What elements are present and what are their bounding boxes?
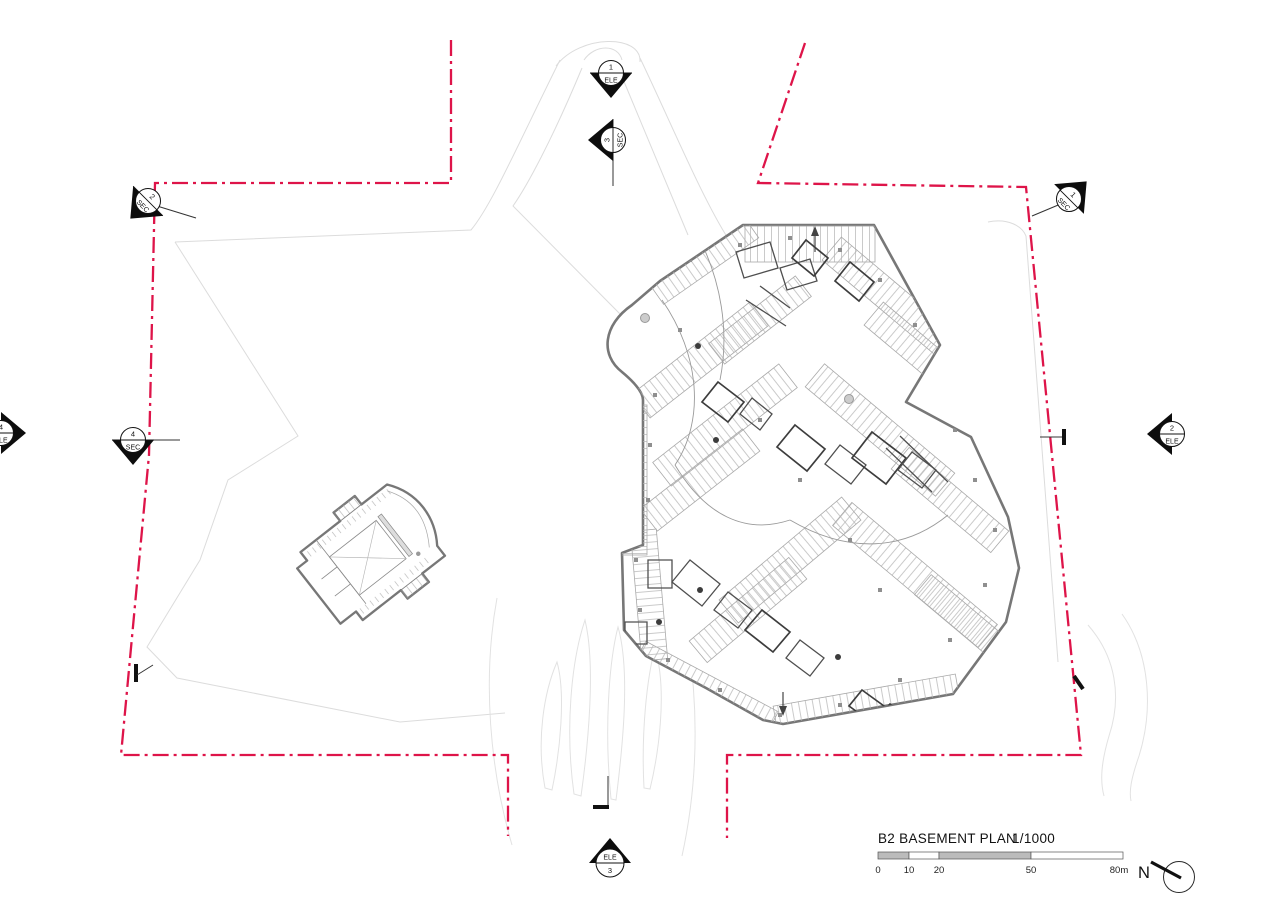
marker-sec-2: 2 SEC [115, 177, 171, 233]
marker-label: ELE [0, 438, 8, 445]
marker-number: 4 [131, 430, 135, 439]
marker-sec-3: 3 SEC [588, 119, 626, 161]
title-block: B2 BASEMENT PLAN 1/1000 0 10 20 50 80m N [875, 831, 1194, 893]
drawing-scale-ratio: 1/1000 [1012, 831, 1055, 846]
drawing-title: B2 BASEMENT PLAN [878, 831, 1016, 846]
north-arrow: N [1138, 862, 1194, 893]
annex-building-plan [284, 467, 462, 641]
marker-label: ELE [604, 78, 618, 85]
scale-bar: 0 10 20 50 80m [875, 852, 1128, 876]
marker-number: 1 [609, 63, 613, 72]
scale-tick-10: 10 [904, 865, 915, 876]
marker-ele-2: 2 ELE [1147, 413, 1185, 455]
marker-label: ELE [1165, 439, 1179, 446]
scale-tick-80m: 80m [1110, 865, 1129, 876]
marker-number: 2 [1170, 424, 1174, 433]
marker-number: 3 [603, 138, 612, 142]
marker-ele-3: ELE 3 [589, 838, 631, 877]
marker-label: SEC [126, 445, 140, 452]
scale-tick-20: 20 [934, 865, 945, 876]
marker-label: ELE [603, 855, 617, 862]
marker-sec-1: 1 SEC [1052, 166, 1101, 215]
marker-ele-4: 4 ELE [0, 412, 26, 454]
scale-tick-0: 0 [875, 865, 880, 876]
marker-number: 4 [0, 423, 3, 432]
marker-sec-4: 4 SEC [112, 428, 154, 466]
north-label: N [1138, 864, 1150, 882]
north-needle-icon [1151, 862, 1181, 878]
floor-plan-canvas: 1 ELE 3 SEC 2 SEC 1 SEC 4 ELE [0, 0, 1280, 904]
marker-number: 3 [608, 866, 612, 875]
marker-label: SEC [618, 133, 625, 147]
floor-plan-sheet: 1 ELE 3 SEC 2 SEC 1 SEC 4 ELE [0, 0, 1280, 904]
marker-ele-1: 1 ELE [590, 61, 632, 99]
scale-tick-50: 50 [1026, 865, 1037, 876]
parking-building-plan [608, 212, 1019, 735]
